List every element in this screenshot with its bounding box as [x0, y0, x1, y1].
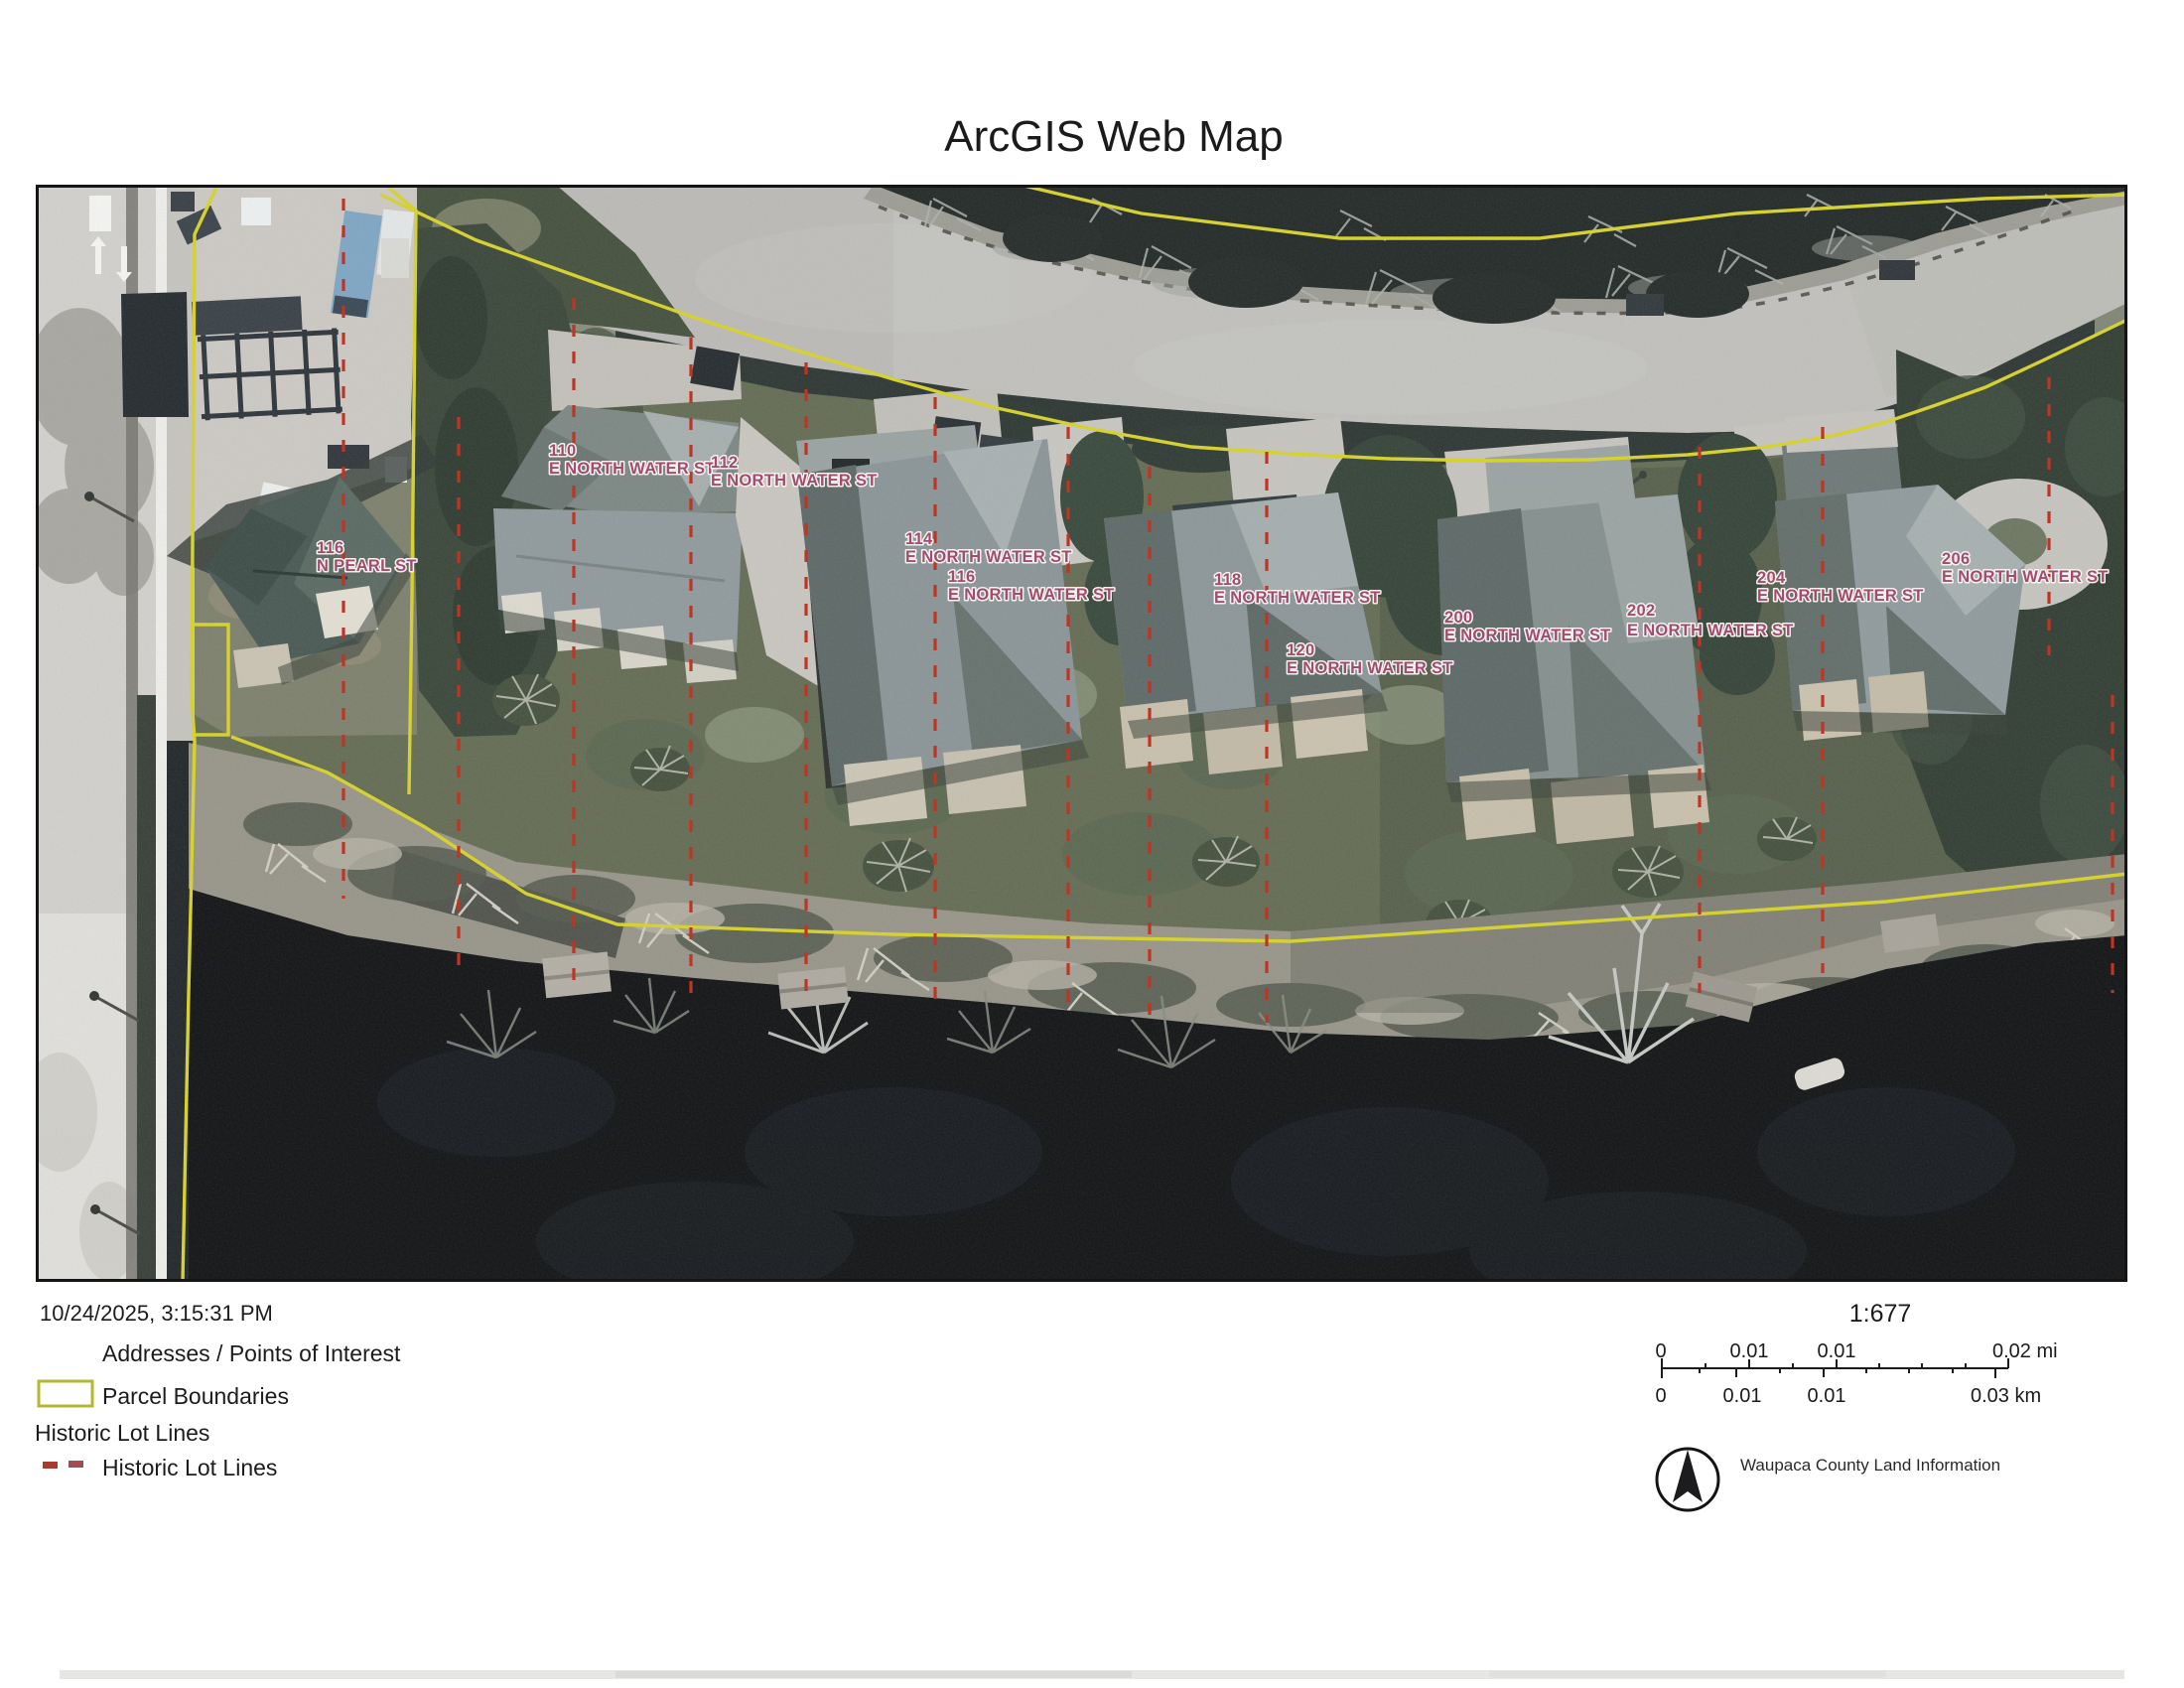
svg-text:206: 206 [1942, 550, 1970, 568]
svg-text:118: 118 [1214, 571, 1242, 589]
svg-text:N PEARL ST: N PEARL ST [317, 557, 417, 575]
svg-text:E NORTH WATER ST: E NORTH WATER ST [549, 460, 716, 478]
svg-text:0: 0 [1655, 1385, 1666, 1407]
svg-text:E NORTH WATER ST: E NORTH WATER ST [948, 586, 1115, 604]
svg-text:116: 116 [317, 539, 344, 557]
svg-text:0.02 mi: 0.02 mi [1992, 1340, 2058, 1362]
svg-text:E NORTH WATER ST: E NORTH WATER ST [711, 472, 878, 490]
svg-text:Parcel Boundaries: Parcel Boundaries [102, 1383, 289, 1409]
svg-text:Historic Lot Lines: Historic Lot Lines [102, 1455, 277, 1480]
svg-text:204: 204 [1757, 569, 1786, 587]
svg-text:0.01: 0.01 [1808, 1385, 1846, 1407]
svg-text:0.03 km: 0.03 km [1971, 1385, 2041, 1407]
svg-text:0.01: 0.01 [1730, 1340, 1769, 1362]
svg-text:E NORTH WATER ST: E NORTH WATER ST [905, 548, 1072, 566]
svg-text:200: 200 [1444, 609, 1472, 627]
svg-text:0.01: 0.01 [1818, 1340, 1856, 1362]
svg-text:202: 202 [1627, 602, 1655, 620]
svg-text:1:677: 1:677 [1849, 1300, 1912, 1328]
svg-text:0.01: 0.01 [1723, 1385, 1762, 1407]
svg-text:114: 114 [905, 530, 933, 548]
svg-text:110: 110 [549, 442, 577, 460]
svg-text:E NORTH WATER ST: E NORTH WATER ST [1942, 568, 2109, 586]
svg-text:112: 112 [711, 454, 739, 472]
svg-text:Historic Lot Lines: Historic Lot Lines [35, 1420, 209, 1446]
svg-text:E NORTH WATER ST: E NORTH WATER ST [1287, 659, 1453, 677]
svg-text:Addresses / Points of Interest: Addresses / Points of Interest [102, 1340, 401, 1366]
svg-text:Waupaca County Land Informatio: Waupaca County Land Information [1740, 1456, 2000, 1475]
svg-text:ArcGIS Web Map: ArcGIS Web Map [944, 112, 1284, 161]
svg-text:120: 120 [1287, 641, 1314, 659]
svg-text:10/24/2025, 3:15:31 PM: 10/24/2025, 3:15:31 PM [40, 1301, 273, 1326]
svg-text:E NORTH WATER ST: E NORTH WATER ST [1757, 587, 1924, 605]
svg-text:E NORTH WATER ST: E NORTH WATER ST [1444, 627, 1611, 644]
svg-text:E NORTH WATER ST: E NORTH WATER ST [1214, 589, 1381, 607]
svg-text:116: 116 [948, 568, 976, 586]
svg-text:E NORTH WATER ST: E NORTH WATER ST [1627, 622, 1794, 639]
